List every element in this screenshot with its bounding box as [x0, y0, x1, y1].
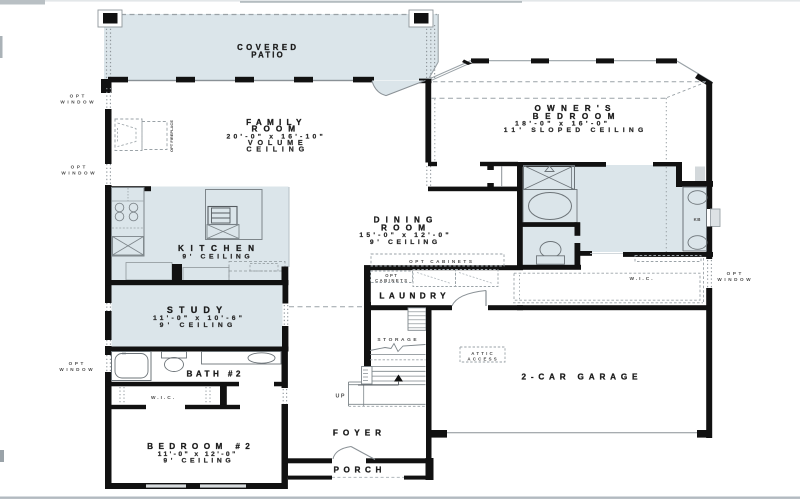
svg-text:WINDOW: WINDOW: [60, 100, 96, 105]
svg-text:LAUNDRY: LAUNDRY: [379, 292, 450, 301]
svg-text:KITCHEN: KITCHEN: [178, 244, 261, 253]
svg-text:2-CAR GARAGE: 2-CAR GARAGE: [521, 372, 642, 381]
svg-text:9' CEILING: 9' CEILING: [370, 239, 441, 246]
svg-text:9' CEILING: 9' CEILING: [163, 458, 234, 465]
svg-text:11' SLOPED CEILING: 11' SLOPED CEILING: [504, 127, 648, 134]
svg-text:ACCESS: ACCESS: [467, 356, 499, 361]
svg-text:PATIO: PATIO: [251, 51, 285, 60]
svg-text:STORAGE: STORAGE: [377, 337, 419, 343]
svg-text:ROOM: ROOM: [252, 125, 301, 134]
svg-text:WINDOW: WINDOW: [61, 171, 97, 176]
svg-text:OPT: OPT: [69, 361, 86, 366]
svg-text:WINDOW: WINDOW: [717, 277, 753, 282]
svg-text:PORCH: PORCH: [334, 465, 387, 474]
svg-text:BATH #2: BATH #2: [187, 370, 244, 379]
svg-text:OPT: OPT: [71, 165, 88, 170]
svg-text:OPT FIREPLACE: OPT FIREPLACE: [169, 120, 174, 152]
svg-text:ROOM: ROOM: [381, 223, 431, 232]
svg-text:CEILING: CEILING: [246, 144, 309, 153]
svg-text:OPT CABINETS: OPT CABINETS: [409, 259, 474, 264]
svg-text:UP: UP: [336, 394, 346, 400]
svg-text:9' CEILING: 9' CEILING: [182, 253, 253, 260]
svg-text:WINDOW: WINDOW: [59, 367, 95, 372]
svg-text:OPT: OPT: [727, 271, 744, 276]
svg-text:9' CEILING: 9' CEILING: [160, 322, 237, 329]
svg-text:CABINETS: CABINETS: [375, 278, 408, 283]
svg-text:FOYER: FOYER: [333, 429, 386, 438]
svg-text:ATTIC: ATTIC: [471, 351, 495, 356]
svg-text:OPT: OPT: [70, 94, 87, 99]
svg-text:BEDROOM #2: BEDROOM #2: [147, 442, 255, 451]
svg-text:STUDY: STUDY: [167, 305, 229, 315]
svg-text:W.I.C.: W.I.C.: [151, 395, 176, 401]
svg-text:W.I.C.: W.I.C.: [629, 276, 654, 282]
svg-text:KB: KB: [694, 217, 701, 222]
